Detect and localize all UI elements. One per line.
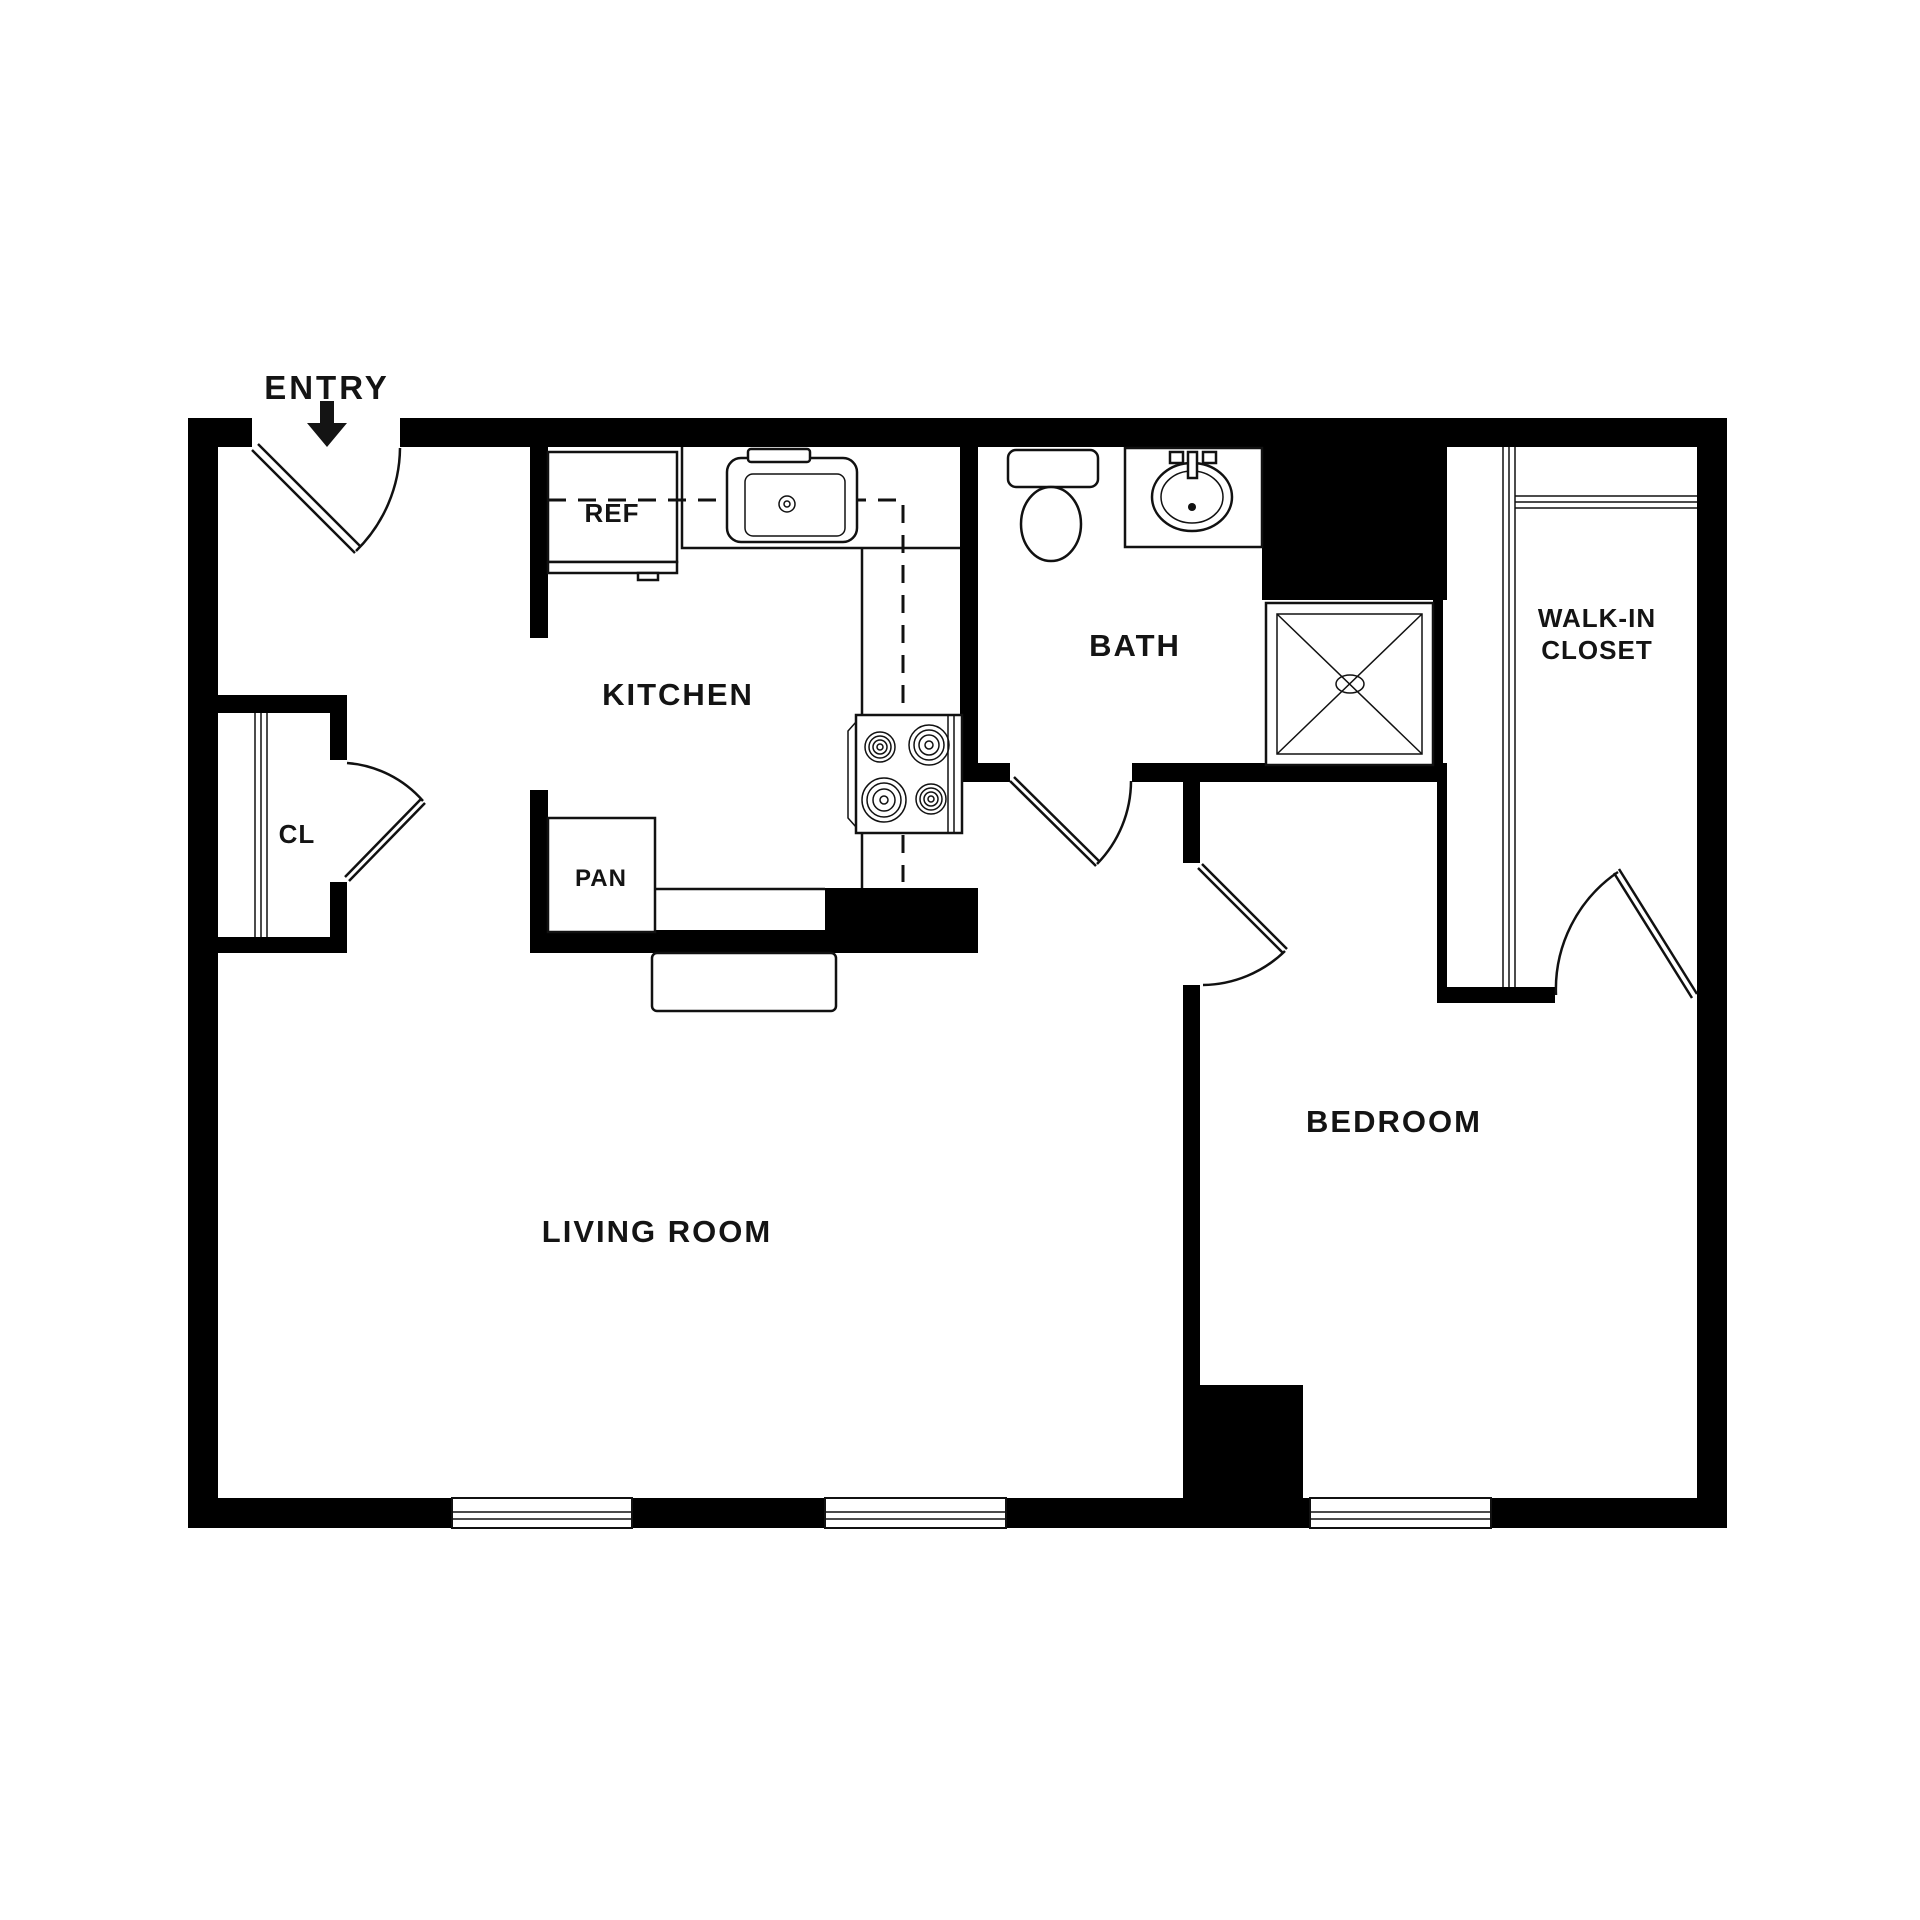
- range-stove-icon: [848, 715, 962, 833]
- door-leaf: [1202, 864, 1287, 949]
- door-leaf: [258, 444, 361, 547]
- sink-outer: [727, 458, 857, 542]
- door-leaf: [1614, 873, 1692, 998]
- wall-right: [1697, 418, 1727, 1528]
- vanity-faucet: [1203, 452, 1216, 463]
- wall-top-main: [400, 418, 1727, 447]
- bedroom-wall-lower: [1183, 985, 1200, 1385]
- door-swing-arc: [1203, 951, 1285, 985]
- refrigerator-handle: [638, 573, 658, 580]
- vanity-drain: [1188, 503, 1196, 511]
- window: [1310, 1498, 1491, 1528]
- kitchen-wall-corner-block: [825, 888, 978, 953]
- entry-door: [252, 444, 400, 553]
- kitchen-wall-bottom: [530, 930, 840, 953]
- cl-closet-wall-top: [218, 695, 347, 713]
- walkin-closet-wall-bottom: [1437, 987, 1555, 1003]
- walkin-closet-label-line2: CLOSET: [1541, 635, 1652, 665]
- walkin-closet-wall-left: [1437, 782, 1447, 987]
- bedroom-label: BEDROOM: [1306, 1104, 1482, 1139]
- door-leaf: [1198, 868, 1283, 953]
- bath-vanity-sink-icon: [1125, 448, 1262, 547]
- pantry-label: PAN: [575, 865, 627, 892]
- wall-bottom-seg-1: [188, 1498, 452, 1528]
- door-leaf: [1010, 781, 1096, 866]
- toilet-bowl: [1021, 487, 1081, 561]
- walkin-closet-door: [1556, 869, 1697, 998]
- refrigerator-label: REF: [585, 498, 640, 528]
- door-swing-arc: [1556, 872, 1618, 995]
- kitchen-wall-stub-lower: [530, 790, 548, 953]
- wall-bottom-seg-2: [632, 1498, 825, 1528]
- bath-door: [1010, 777, 1131, 866]
- kitchen-sink-icon: [727, 449, 857, 542]
- shower-icon: [1266, 603, 1433, 765]
- kitchen-label: KITCHEN: [602, 677, 754, 712]
- door-leaf: [252, 450, 355, 553]
- walkin-closet-shelf-lines: [1503, 447, 1697, 987]
- bar-counter: [652, 953, 836, 1011]
- cl-closet-rod-lines: [255, 713, 267, 937]
- door-leaf: [349, 803, 425, 881]
- refrigerator-door-edge: [548, 562, 677, 573]
- wall-bottom-seg-4: [1491, 1498, 1727, 1528]
- bath-label: BATH: [1089, 628, 1181, 663]
- cl-closet-wall-bottom: [218, 937, 347, 953]
- cl-closet-label: CL: [279, 819, 316, 849]
- toilet-tank: [1008, 450, 1098, 487]
- cl-closet-door: [345, 763, 425, 881]
- cl-closet-stub-bottom: [330, 882, 347, 937]
- door-leaf: [1619, 869, 1697, 994]
- window: [452, 1498, 632, 1528]
- vanity-faucet: [1188, 452, 1197, 478]
- entry-down-arrow-icon: [307, 401, 347, 447]
- wall-left: [188, 418, 218, 1528]
- door-swing-arc: [347, 763, 423, 801]
- bath-door-stub-left: [978, 763, 1010, 782]
- door-leaf: [1014, 777, 1100, 862]
- window: [825, 1498, 1006, 1528]
- door-swing-arc: [1097, 781, 1131, 864]
- bedroom-wall-upper: [1183, 782, 1200, 863]
- exterior-walls: [188, 418, 1727, 1528]
- floor-plan-drawing: ENTRY REF KITCHEN PAN CL BATH WALK-IN CL…: [0, 0, 1920, 1920]
- floor-plan-page: ENTRY REF KITCHEN PAN CL BATH WALK-IN CL…: [0, 0, 1920, 1920]
- door-swing-arc: [356, 448, 400, 551]
- stove-body: [856, 715, 962, 833]
- bedroom-door: [1198, 864, 1287, 985]
- sink-faucet: [748, 449, 810, 462]
- entry-label: ENTRY: [264, 369, 390, 406]
- walkin-closet-label-line1: WALK-IN: [1538, 603, 1656, 633]
- shower-side-wall: [1433, 600, 1443, 765]
- kitchen-wall-stub-upper: [530, 447, 548, 638]
- cl-closet-stub-top: [330, 713, 347, 760]
- plumbing-wall-block: [1262, 447, 1447, 600]
- bedroom-corner-block: [1183, 1385, 1303, 1528]
- vanity-faucet: [1170, 452, 1183, 463]
- door-leaf: [345, 799, 421, 877]
- living-room-label: LIVING ROOM: [542, 1214, 772, 1249]
- toilet-icon: [1008, 450, 1098, 561]
